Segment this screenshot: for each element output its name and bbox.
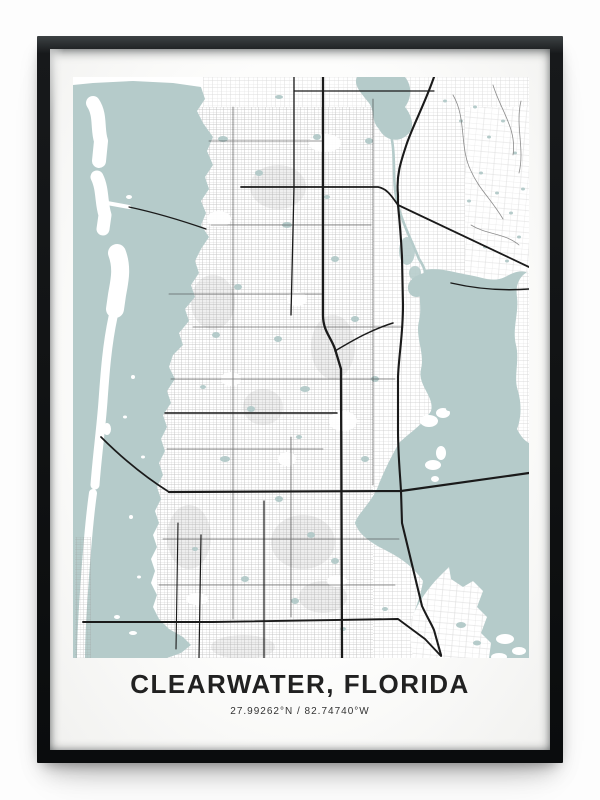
- peninsula-lagoons-item: [456, 622, 466, 628]
- east-lake-ponds-item: [495, 192, 499, 195]
- district-density-blocks-item: [271, 515, 335, 569]
- east-lake-ponds-item: [509, 212, 513, 215]
- mainland-ponds-item: [324, 195, 330, 199]
- east-lake-ponds-item: [487, 136, 491, 139]
- district-density-blocks-item: [191, 275, 235, 329]
- sound-islets-item: [141, 456, 145, 459]
- mainland-ponds-item: [446, 407, 452, 411]
- park-patches-item: [329, 411, 357, 431]
- bay-islets-item: [496, 634, 514, 644]
- peninsula-lagoons-item: [499, 621, 507, 626]
- city-map: [73, 77, 529, 658]
- sound-islets-item: [137, 576, 141, 579]
- mainland-ponds-item: [361, 456, 369, 462]
- mainland-ponds-item: [365, 138, 373, 144]
- mainland-ponds-item: [212, 332, 220, 338]
- island-street-texture: [75, 537, 91, 658]
- mainland-ponds-item: [234, 284, 242, 290]
- east-lake-ponds-item: [521, 188, 525, 191]
- poster-matte: CLEARWATER, FLORIDA 27.99262°N / 82.7474…: [50, 49, 550, 750]
- city-title: CLEARWATER, FLORIDA: [50, 671, 550, 697]
- mainland-ponds-item: [255, 170, 263, 176]
- east-lake-ponds-item: [479, 172, 483, 175]
- east-lake-ponds-item: [473, 106, 477, 109]
- bay-islets-item: [512, 647, 526, 655]
- mainland-ponds-item: [192, 547, 198, 551]
- caladesi-island: [97, 177, 105, 229]
- coopers-point-cape-item: [431, 476, 439, 482]
- mainland-ponds-item: [300, 386, 310, 392]
- east-lake-ponds-item: [501, 120, 505, 123]
- sound-islets-item: [123, 416, 127, 419]
- poster-caption: CLEARWATER, FLORIDA 27.99262°N / 82.7474…: [50, 671, 550, 717]
- district-density-blocks-item: [167, 505, 211, 569]
- clearwater-beach-island: [115, 253, 120, 309]
- mainland-ponds-item: [453, 318, 461, 324]
- east-lake-ponds-item: [517, 236, 521, 239]
- sound-islets-item: [131, 375, 135, 379]
- mainland-ponds-item: [307, 532, 315, 538]
- mainland-ponds-item: [275, 496, 283, 502]
- district-density-blocks-item: [211, 635, 275, 658]
- picture-frame: CLEARWATER, FLORIDA 27.99262°N / 82.7474…: [37, 36, 563, 763]
- coopers-point-cape-item: [420, 415, 438, 427]
- mainland-ponds-item: [382, 607, 388, 611]
- mainland-ponds-item: [275, 95, 283, 99]
- peninsula-lagoons-item: [473, 641, 481, 646]
- city-coordinates: 27.99262°N / 82.74740°W: [50, 706, 550, 717]
- mainland-ponds-item: [296, 435, 302, 439]
- mainland-ponds-item: [247, 406, 255, 412]
- district-density-blocks-item: [311, 315, 355, 379]
- coopers-point-cape-item: [425, 460, 441, 470]
- mainland-ponds-item: [200, 385, 206, 389]
- map-geometry: [73, 77, 529, 658]
- coopers-point-cape-item: [436, 446, 446, 460]
- sound-islets-item: [129, 631, 137, 635]
- sound-islets-item: [126, 195, 132, 199]
- mainland-ponds-item: [331, 256, 339, 262]
- mainland-ponds-item: [313, 134, 321, 140]
- mainland-ponds-item: [474, 375, 480, 379]
- sound-islets-item: [129, 515, 133, 519]
- wall-background: CLEARWATER, FLORIDA 27.99262°N / 82.7474…: [0, 0, 600, 800]
- park-patches-item: [278, 452, 296, 466]
- mainland-ponds-item: [291, 598, 299, 604]
- mainland-ponds-item: [351, 316, 359, 322]
- mainland-ponds-item: [241, 576, 249, 582]
- east-lake-ponds-item: [467, 200, 471, 203]
- mainland-ponds-item: [274, 336, 282, 342]
- sound-islets-item: [114, 615, 120, 619]
- mainland-ponds-item: [331, 558, 339, 564]
- park-patches-item: [186, 593, 208, 605]
- sound-islets-item: [103, 423, 111, 435]
- mainland-ponds-item: [220, 456, 230, 462]
- east-lake-ponds-item: [443, 100, 447, 103]
- honeymoon-island: [93, 103, 101, 161]
- east-lake-ponds-item: [505, 260, 509, 263]
